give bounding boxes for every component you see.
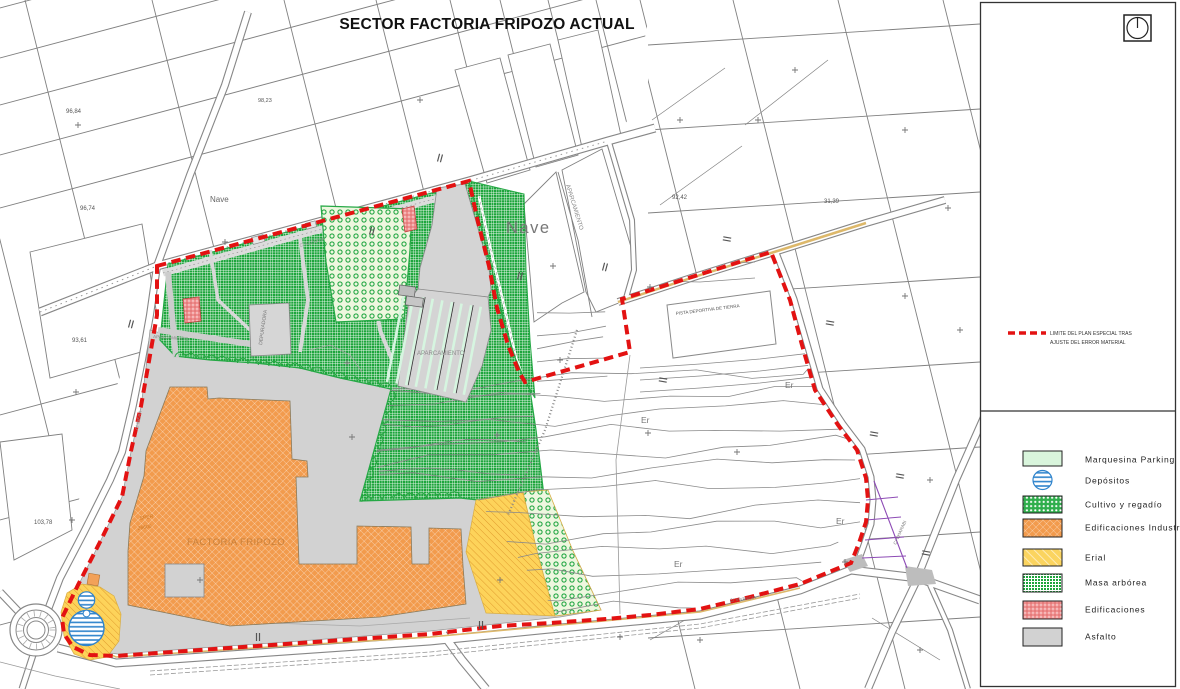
svg-text:92,42: 92,42: [672, 195, 688, 201]
svg-text:Marquesina Parking: Marquesina Parking: [1085, 455, 1175, 465]
svg-text:96,84: 96,84: [66, 109, 82, 115]
svg-text:Depósitos: Depósitos: [1085, 476, 1130, 486]
svg-text:Er: Er: [785, 380, 794, 390]
svg-text:Er: Er: [641, 415, 650, 425]
svg-text:Er: Er: [836, 516, 845, 526]
svg-text:Edificaciones: Edificaciones: [1085, 605, 1145, 615]
svg-text:96,74: 96,74: [80, 206, 96, 212]
svg-text:31,39: 31,39: [824, 199, 840, 205]
svg-text:Nave: Nave: [210, 195, 229, 204]
svg-text:AJUSTE DEL ERROR MATERIAL: AJUSTE DEL ERROR MATERIAL: [1050, 340, 1126, 346]
svg-text:93,61: 93,61: [72, 338, 88, 344]
svg-text:Cultivo y regadío: Cultivo y regadío: [1085, 500, 1162, 510]
svg-text:Er: Er: [674, 559, 683, 569]
svg-text:Masa arbórea: Masa arbórea: [1085, 578, 1147, 588]
svg-text:LIMITE DEL PLAN ESPECIAL TRAS: LIMITE DEL PLAN ESPECIAL TRAS: [1050, 331, 1132, 337]
svg-text:APARCAMIENTO: APARCAMIENTO: [417, 351, 465, 357]
svg-text:Asfalto: Asfalto: [1085, 632, 1117, 642]
svg-text:Nave: Nave: [506, 219, 551, 237]
svg-text:FACTORIA FRIPOZO: FACTORIA FRIPOZO: [187, 537, 285, 548]
svg-text:Erial: Erial: [1085, 553, 1106, 563]
svg-text:Edificaciones Industriales: Edificaciones Industriales: [1085, 523, 1180, 533]
svg-text:98,23: 98,23: [258, 98, 272, 104]
svg-text:103,78: 103,78: [34, 520, 53, 526]
svg-text:SECTOR FACTORIA FRIPOZO ACTUAL: SECTOR FACTORIA FRIPOZO ACTUAL: [339, 16, 635, 33]
